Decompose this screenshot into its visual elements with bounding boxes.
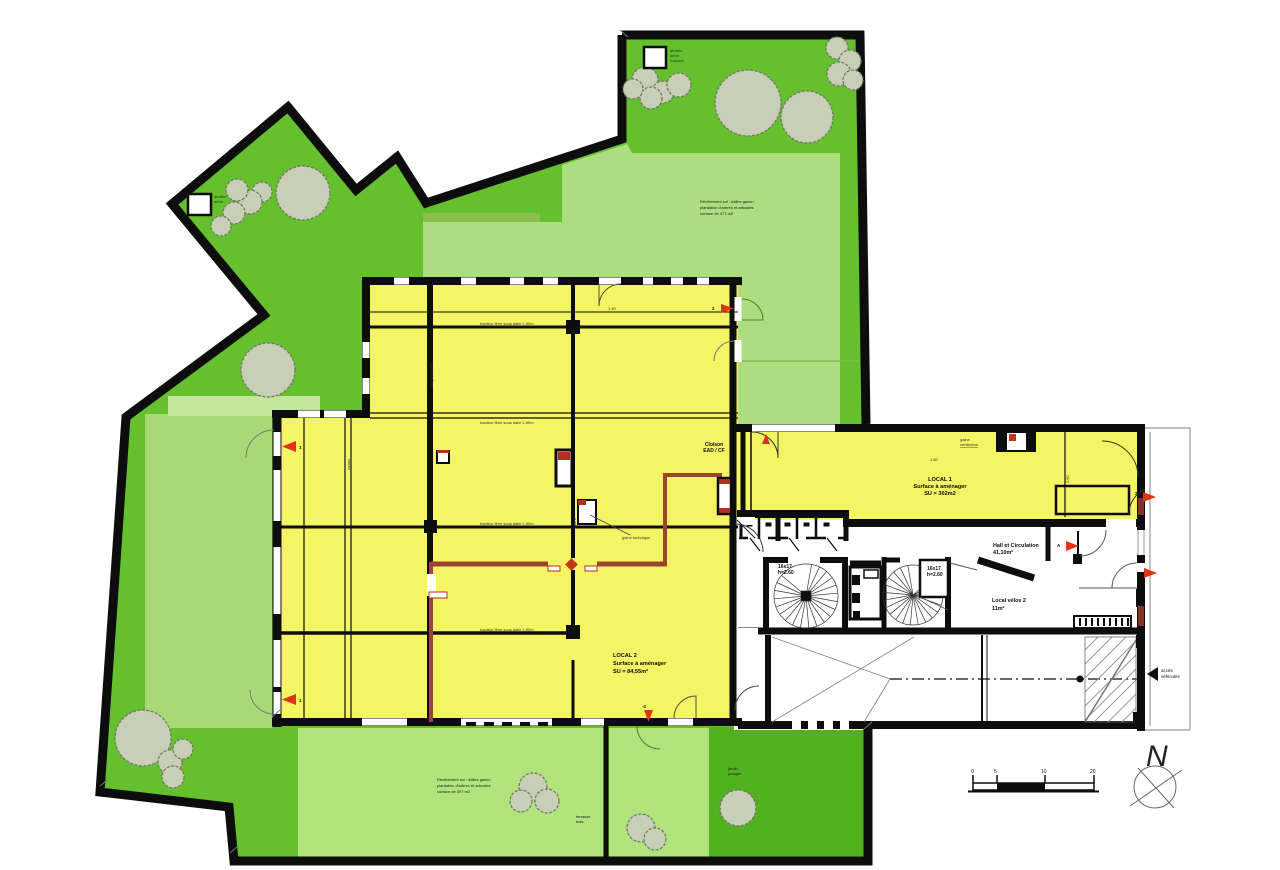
svg-text:SU = 84,55m²: SU = 84,55m² bbox=[613, 668, 648, 675]
svg-text:20: 20 bbox=[1090, 769, 1096, 775]
svg-text:hauteur libre sous dalle 1.80m: hauteur libre sous dalle 1.80m bbox=[480, 521, 534, 526]
svg-text:hauteur libre sous dalle 1.80m: hauteur libre sous dalle 1.80m bbox=[480, 420, 534, 425]
svg-text:EAD / CF: EAD / CF bbox=[703, 448, 724, 454]
svg-text:gaine technique: gaine technique bbox=[622, 535, 651, 540]
svg-text:potager: potager bbox=[728, 771, 742, 776]
svg-text:h=2.60: h=2.60 bbox=[778, 570, 794, 576]
svg-text:Surface à aménager: Surface à aménager bbox=[913, 484, 967, 490]
svg-text:Local vélos 2: Local vélos 2 bbox=[992, 598, 1026, 604]
svg-text:1.40: 1.40 bbox=[608, 306, 617, 311]
svg-text:N: N bbox=[1146, 740, 1168, 773]
svg-text:2.60: 2.60 bbox=[1065, 474, 1070, 483]
svg-text:hauteur libre sous dalle 1.80m: hauteur libre sous dalle 1.80m bbox=[480, 627, 534, 632]
svg-text:Révêtement sol : dalles gazon: Révêtement sol : dalles gazon bbox=[700, 199, 754, 204]
svg-text:11m²: 11m² bbox=[992, 606, 1004, 612]
svg-text:41,10m²: 41,10m² bbox=[993, 550, 1013, 556]
svg-text:bois: bois bbox=[576, 819, 583, 824]
svg-text:h=2.60: h=2.60 bbox=[927, 572, 943, 578]
svg-text:surface de 477 m2: surface de 477 m2 bbox=[700, 211, 734, 216]
svg-text:ventilation: ventilation bbox=[960, 442, 978, 447]
svg-text:0: 0 bbox=[971, 769, 974, 775]
svg-text:1.50: 1.50 bbox=[930, 457, 939, 462]
svg-text:plantation d'arbres et arbuste: plantation d'arbres et arbustes bbox=[700, 205, 754, 210]
svg-text:gaine: gaine bbox=[572, 516, 577, 527]
svg-text:plantation d'arbres et arbuste: plantation d'arbres et arbustes bbox=[437, 783, 491, 788]
svg-text:10: 10 bbox=[1041, 769, 1047, 775]
svg-text:véhicules: véhicules bbox=[1161, 674, 1181, 679]
svg-text:Hall et Circulation: Hall et Circulation bbox=[993, 543, 1039, 549]
svg-text:hauteur libre sous dalle 1.80m: hauteur libre sous dalle 1.80m bbox=[480, 321, 534, 326]
svg-text:SU = 302m2: SU = 302m2 bbox=[924, 491, 956, 497]
svg-text:accès: accès bbox=[1161, 668, 1174, 673]
svg-text:arbre: arbre bbox=[214, 199, 224, 204]
svg-text:-2: -2 bbox=[642, 704, 646, 709]
svg-text:rampe d'accès: rampe d'accès bbox=[429, 362, 434, 388]
svg-text:Révêtement sol : dalles gazon: Révêtement sol : dalles gazon bbox=[437, 777, 491, 782]
svg-text:surface de 397 m2: surface de 397 m2 bbox=[437, 789, 471, 794]
svg-text:existant: existant bbox=[670, 58, 685, 63]
svg-text:LOCAL 2: LOCAL 2 bbox=[613, 653, 637, 659]
svg-text:Surface à aménager: Surface à aménager bbox=[613, 661, 667, 667]
svg-text:5: 5 bbox=[994, 769, 997, 775]
svg-text:LOCAL 1: LOCAL 1 bbox=[928, 477, 952, 483]
svg-text:rampe: rampe bbox=[346, 458, 351, 470]
